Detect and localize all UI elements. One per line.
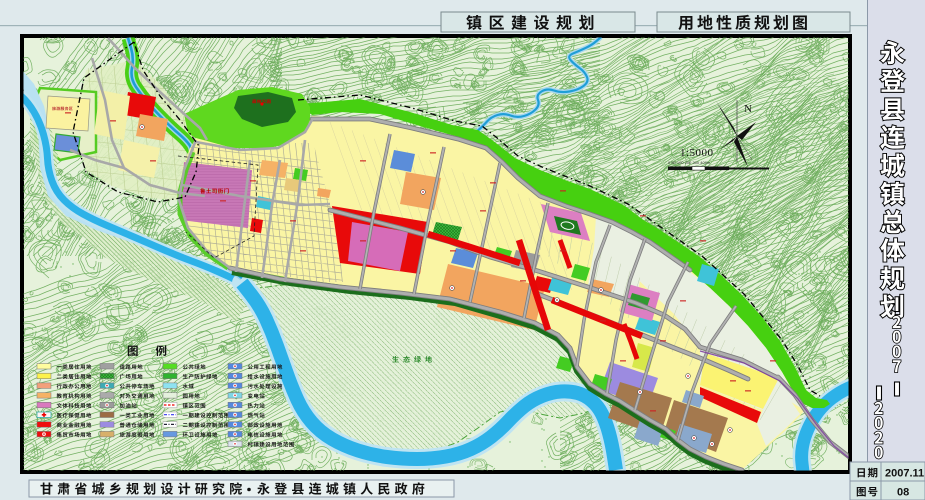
svg-text:2007.11: 2007.11 [885, 468, 924, 480]
svg-text:N: N [744, 103, 752, 115]
svg-text:1:5000: 1:5000 [680, 147, 714, 159]
svg-text:0 50 100 200 300: 0 50 100 200 300 400m [668, 160, 711, 165]
svg-text:08: 08 [897, 487, 909, 499]
